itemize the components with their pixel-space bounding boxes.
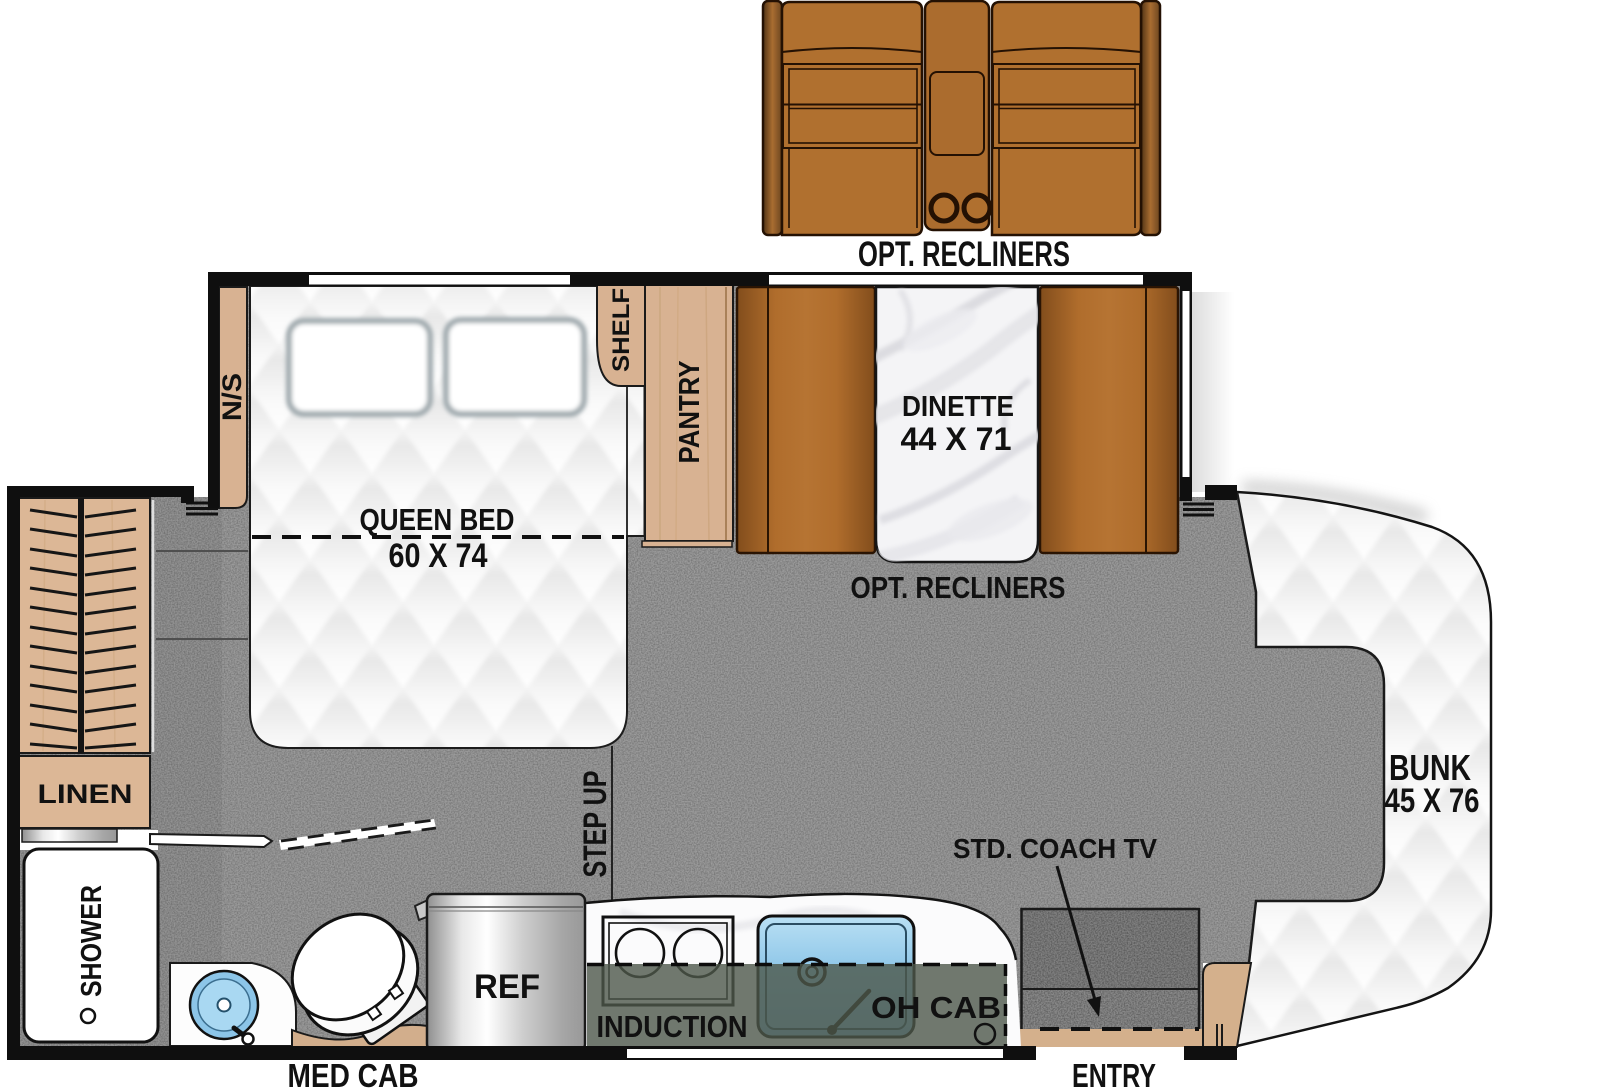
svg-text:60 X 74: 60 X 74 <box>389 537 488 575</box>
svg-text:PANTRY: PANTRY <box>674 361 706 464</box>
svg-text:LINEN: LINEN <box>38 779 133 809</box>
svg-text:DINETTE: DINETTE <box>902 391 1014 423</box>
svg-text:45 X 76: 45 X 76 <box>1385 782 1480 820</box>
svg-text:STEP UP: STEP UP <box>577 771 613 878</box>
svg-text:OPT. RECLINERS: OPT. RECLINERS <box>858 235 1070 274</box>
svg-text:SHELF: SHELF <box>608 288 635 372</box>
svg-text:OH CAB: OH CAB <box>871 990 1001 1025</box>
svg-text:44 X 71: 44 X 71 <box>901 421 1012 457</box>
svg-text:REF: REF <box>474 968 540 1006</box>
svg-text:STD. COACH TV: STD. COACH TV <box>953 833 1157 864</box>
svg-text:INDUCTION: INDUCTION <box>597 1009 748 1044</box>
svg-text:MED CAB: MED CAB <box>288 1057 419 1089</box>
svg-text:ENTRY: ENTRY <box>1072 1057 1156 1089</box>
svg-text:N/S: N/S <box>217 373 247 421</box>
svg-text:OPT. RECLINERS: OPT. RECLINERS <box>851 570 1066 605</box>
svg-text:QUEEN BED: QUEEN BED <box>360 502 515 537</box>
svg-text:SHOWER: SHOWER <box>76 885 108 997</box>
